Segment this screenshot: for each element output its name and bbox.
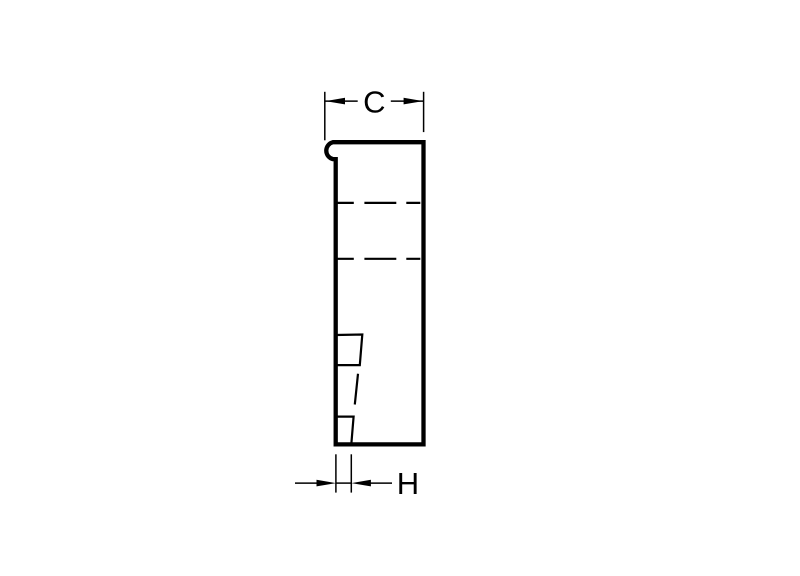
svg-text:H: H [397,466,419,501]
svg-text:C: C [363,85,385,120]
